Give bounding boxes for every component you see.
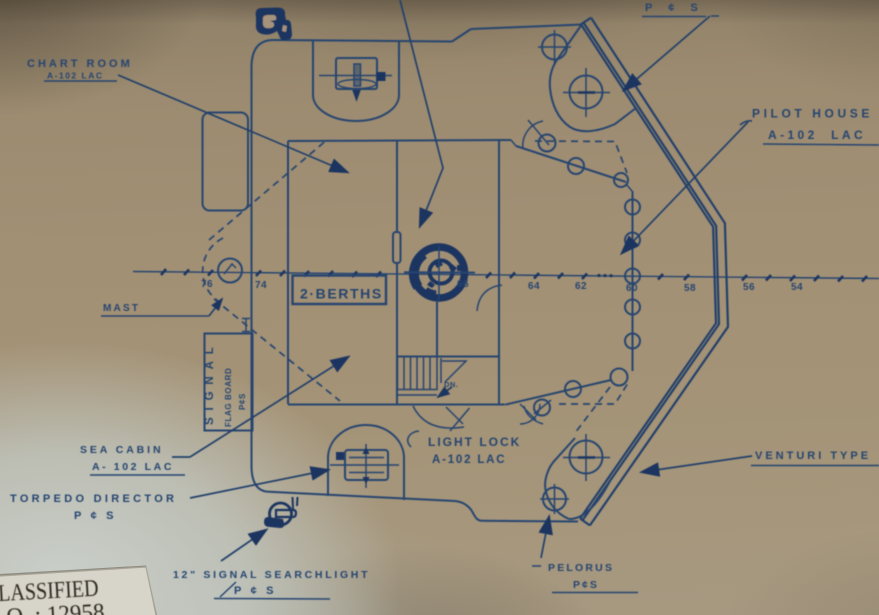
svg-text:SEA CABIN: SEA CABIN: [80, 444, 163, 456]
svg-text:74: 74: [255, 280, 267, 291]
svg-text:VENTURI TYPE: VENTURI TYPE: [755, 450, 871, 462]
svg-text:54: 54: [791, 282, 803, 293]
svg-text:76: 76: [201, 279, 213, 290]
svg-text:66: 66: [457, 279, 469, 290]
svg-text:P ¢ S: P ¢ S: [234, 585, 277, 597]
svg-text:PELORUS: PELORUS: [548, 562, 614, 574]
svg-text:58: 58: [684, 283, 696, 294]
svg-text:DN.: DN.: [444, 380, 458, 389]
svg-text:SIGNAL: SIGNAL: [204, 345, 216, 425]
svg-text:TORPEDO DIRECTOR: TORPEDO DIRECTOR: [10, 493, 177, 505]
svg-text:60: 60: [626, 283, 638, 294]
svg-text:2·BERTHS: 2·BERTHS: [300, 286, 383, 302]
svg-text:62: 62: [575, 281, 587, 292]
svg-text:P ¢ S: P ¢ S: [74, 510, 117, 522]
svg-text:FLAG BOARD: FLAG BOARD: [224, 368, 233, 427]
svg-text:64: 64: [528, 281, 540, 292]
svg-text:56: 56: [743, 282, 755, 293]
svg-text:A-102 LAC: A-102 LAC: [432, 454, 506, 466]
svg-text:A-102 LAC: A-102 LAC: [47, 71, 103, 81]
svg-text:PILOT HOUSE: PILOT HOUSE: [752, 107, 873, 121]
svg-text:LIGHT LOCK: LIGHT LOCK: [428, 435, 521, 449]
svg-text:A-102 LAC: A-102 LAC: [768, 128, 866, 142]
svg-text:P ¢ S: P ¢ S: [645, 2, 704, 14]
svg-text:A- 102 LAC: A- 102 LAC: [92, 461, 174, 473]
svg-text:12" SIGNAL SEARCHLIGHT: 12" SIGNAL SEARCHLIGHT: [173, 569, 370, 581]
svg-text:P¢S: P¢S: [238, 393, 247, 410]
svg-text:CHART ROOM: CHART ROOM: [27, 58, 133, 70]
svg-text:P¢S: P¢S: [573, 579, 599, 591]
svg-text:MAST: MAST: [103, 303, 140, 314]
